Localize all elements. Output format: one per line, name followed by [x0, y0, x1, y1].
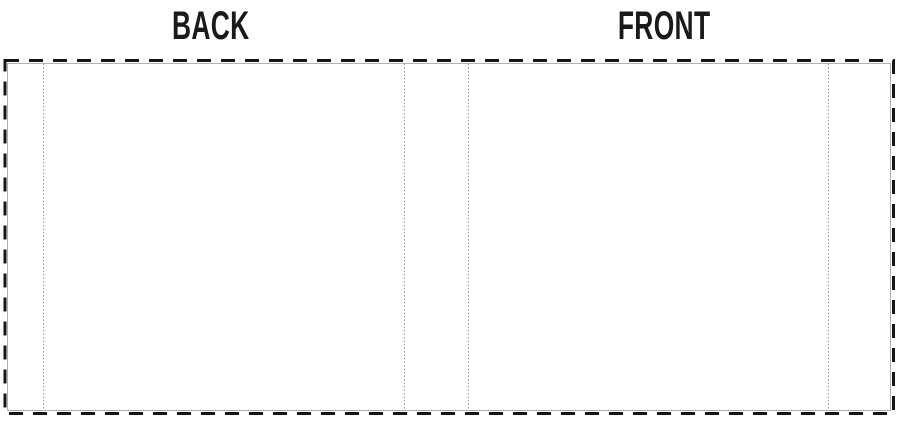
template-canvas: BACK FRONT: [0, 0, 900, 442]
template-outline: [0, 0, 900, 442]
hairline-border: [8, 64, 891, 411]
cut-line-border: [5, 61, 894, 414]
